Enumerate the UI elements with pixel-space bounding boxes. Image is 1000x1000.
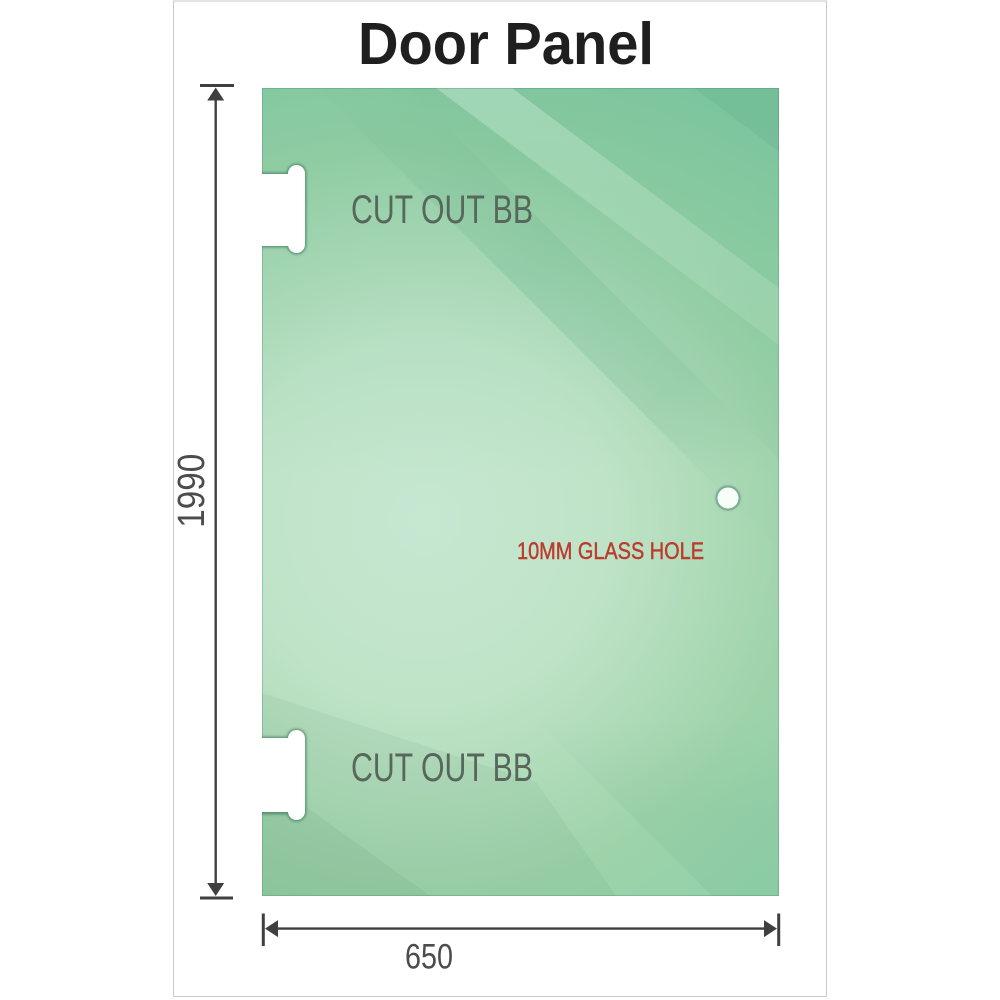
- svg-text:10MM GLASS HOLE: 10MM GLASS HOLE: [517, 538, 704, 565]
- svg-text:CUT OUT BB: CUT OUT BB: [351, 188, 533, 232]
- svg-text:650: 650: [405, 937, 453, 976]
- svg-text:1990: 1990: [170, 454, 212, 528]
- svg-text:Door Panel: Door Panel: [358, 11, 654, 77]
- svg-text:CUT OUT BB: CUT OUT BB: [351, 746, 533, 790]
